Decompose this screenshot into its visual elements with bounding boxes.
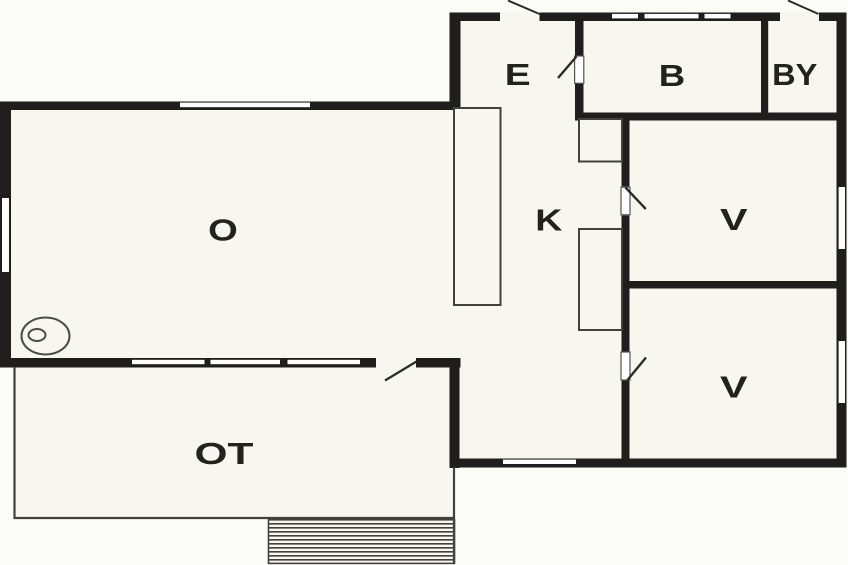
svg-text:BY: BY: [772, 57, 817, 92]
svg-text:V: V: [720, 202, 748, 237]
svg-text:O: O: [208, 214, 238, 248]
svg-text:K: K: [535, 204, 562, 238]
svg-text:B: B: [659, 58, 685, 93]
svg-text:V: V: [720, 369, 748, 404]
svg-text:OT: OT: [195, 436, 254, 471]
svg-text:E: E: [505, 58, 531, 92]
